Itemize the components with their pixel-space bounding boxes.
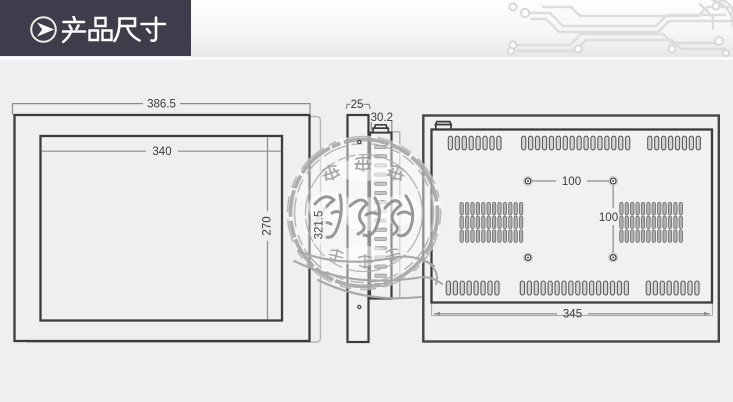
svg-text:321.5: 321.5	[314, 211, 326, 240]
svg-text:30.2: 30.2	[371, 112, 393, 124]
svg-text:100: 100	[599, 212, 618, 224]
svg-text:270: 270	[262, 216, 274, 235]
svg-text:25: 25	[351, 99, 364, 111]
svg-text:340: 340	[152, 146, 171, 158]
svg-text:386.5: 386.5	[147, 99, 176, 111]
svg-text:100: 100	[562, 176, 581, 188]
svg-text:345: 345	[563, 309, 582, 321]
